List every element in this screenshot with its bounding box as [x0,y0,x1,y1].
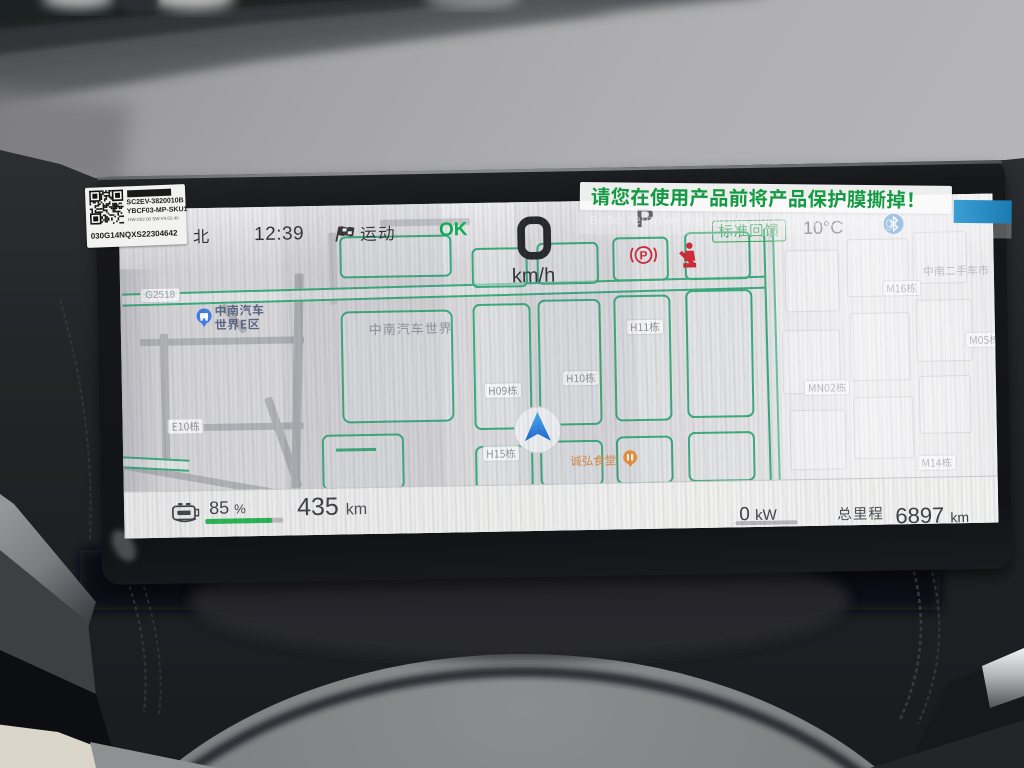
svg-text:P: P [639,248,647,262]
